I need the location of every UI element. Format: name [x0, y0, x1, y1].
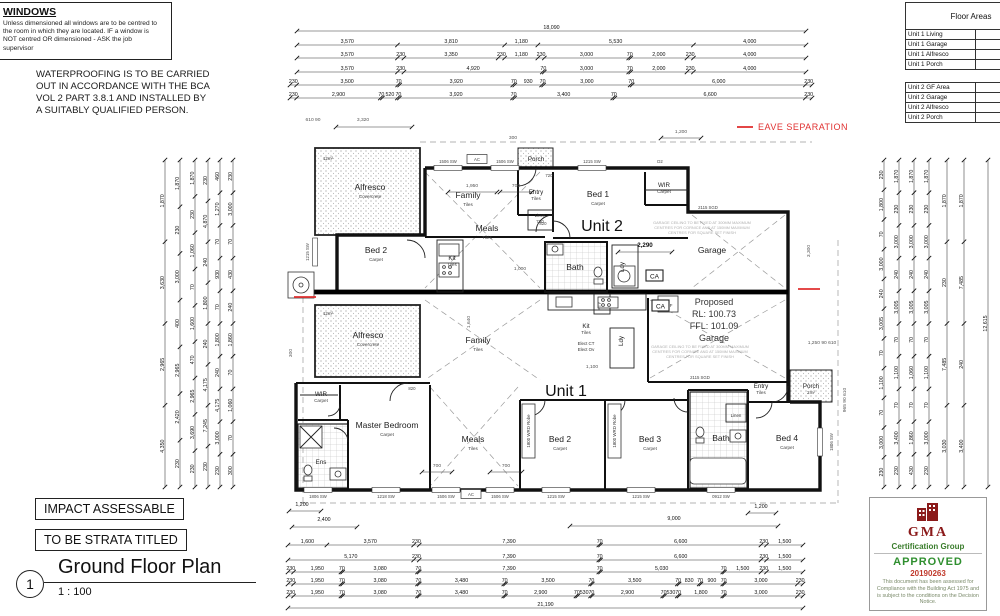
dimension-label: 3,000	[894, 235, 900, 248]
robe-label: 1800 WRD Robe	[612, 414, 617, 448]
approved-status: APPROVED	[870, 556, 986, 568]
dimension-label: 1,060	[909, 366, 915, 379]
dimension-label: 230	[175, 459, 181, 468]
floor-area-row: Unit 1 Garage	[906, 40, 1000, 50]
floor-area-label: Unit 2 Garage	[906, 93, 976, 103]
drawing-number-bubble: 1	[16, 570, 44, 598]
dimension-label: 70	[627, 52, 633, 58]
drawing-sheet: 18,0903,5703,8101,1805,5304,0003,5702303…	[0, 0, 1000, 616]
gma-building-icon	[913, 501, 943, 521]
window-label: 1506 SW	[496, 159, 515, 164]
room-label: PTY	[597, 302, 602, 311]
dimension-label: 70	[511, 79, 517, 85]
dimension-label: 230	[759, 566, 768, 572]
dimension-label: 70	[894, 337, 900, 343]
dimension-label: 240	[924, 270, 930, 279]
window-label: 1215 SW	[305, 242, 310, 261]
room-finish-label: Tiles	[447, 262, 457, 267]
dimension-label: 1,950	[311, 578, 324, 584]
dimension-label: 230	[215, 466, 221, 475]
floor-areas-title: Floor Areas	[906, 3, 1000, 30]
room-finish-label: Covercrete	[357, 342, 380, 347]
floor-area-label: Unit 2 Porch	[906, 113, 976, 123]
dimension-label: 3,000	[754, 590, 767, 596]
eave-separation-legend: EAVE SEPARATION	[758, 122, 848, 132]
room-label: Bed 4	[776, 433, 798, 443]
dimension-label: 2,000	[652, 52, 665, 58]
dimension-label: 230	[924, 466, 930, 475]
dimension-label: 70	[909, 402, 915, 408]
dimension-label: 1,200	[754, 504, 767, 510]
dimension-label: 1,500	[778, 566, 791, 572]
impact-assessable-stamp: IMPACT ASSESSABLE	[35, 498, 184, 520]
dimension-label: 3,080	[373, 590, 386, 596]
floor-areas-panel: Floor Areas Unit 1 LivingUnit 1 GarageUn…	[905, 2, 1000, 123]
room-label: Entry	[754, 383, 769, 390]
window-label: 1506 SW	[437, 494, 456, 499]
dimension-label: 830	[685, 578, 694, 584]
dimension-label: 70	[697, 578, 703, 584]
internal-dimension: 1,000	[514, 266, 527, 272]
dimension-label: 520	[385, 92, 394, 98]
dimension-label: 1,270	[215, 202, 221, 215]
dimension-label: 3,000	[580, 52, 593, 58]
room-finish-label: Carpet	[369, 257, 384, 262]
internal-dimension: 3,300	[806, 245, 812, 258]
room-label: Linen	[731, 413, 742, 418]
dimension-label: 3,000	[924, 431, 930, 444]
dimension-label: 5,170	[344, 554, 357, 560]
room-label: Bath	[712, 433, 730, 443]
room-label: WIR	[658, 182, 671, 189]
dimension-label: 3,920	[450, 79, 463, 85]
internal-dimension: 300	[288, 349, 294, 357]
dimension-label: 230	[286, 578, 295, 584]
room-label: Family	[455, 190, 481, 200]
dimension-label: 230	[289, 79, 298, 85]
dimension-label: 1,100	[879, 376, 885, 389]
dimension-label: 70	[879, 410, 885, 416]
internal-dimension: 700	[433, 463, 441, 469]
dimension-label: 12,615	[983, 315, 989, 331]
ca-label: CA	[650, 274, 660, 281]
dimension-label: 3,080	[373, 566, 386, 572]
room-label: Linen	[535, 213, 546, 218]
room-finish-label: 2m²	[807, 390, 815, 395]
dimension-label: 3,000	[924, 235, 930, 248]
room-label: Family	[465, 335, 491, 345]
dimension-label: 3,000	[215, 431, 221, 444]
floor-area-value	[976, 93, 1000, 103]
dimension-label: 230	[879, 468, 885, 477]
dimension-label: 3,690	[190, 426, 196, 439]
room-label: Ldy	[618, 335, 625, 346]
dimension-label: 1,800	[203, 296, 209, 309]
window-label: 2115 SGD	[698, 205, 718, 210]
room-label: Alfresco	[353, 330, 384, 340]
floor-area-row: Unit 2 Porch	[906, 113, 1000, 123]
dimension-label: 230	[412, 539, 421, 545]
room-label: Kit	[582, 323, 590, 330]
dimension-label: 6,000	[712, 79, 725, 85]
dimension-label: 70	[721, 590, 727, 596]
dimension-label: 18,090	[543, 25, 559, 31]
dimension-label: 1,870	[909, 170, 915, 183]
floor-area-value	[976, 103, 1000, 113]
internal-dimension: 1,250 90 610	[808, 340, 837, 346]
title-underline	[44, 582, 256, 583]
floor-area-label: Unit 2 Alfresco	[906, 103, 976, 113]
dimension-label: 230	[894, 466, 900, 475]
dimension-label: 3,000	[879, 436, 885, 449]
dimension-label: 3,480	[455, 590, 468, 596]
floor-areas-table-unit1: Floor Areas Unit 1 LivingUnit 1 GarageUn…	[905, 2, 1000, 70]
room-label: Meals	[476, 223, 499, 233]
dimension-label: 1,870	[160, 194, 166, 207]
drawing-title: Ground Floor Plan	[58, 556, 221, 579]
dimension-label: 70	[228, 239, 234, 245]
dimension-label: 3,500	[541, 578, 554, 584]
dimension-label: 230	[175, 226, 181, 235]
dimension-label: 70	[339, 578, 345, 584]
room-finish-label: Tiles	[473, 347, 483, 352]
dimension-label: 70	[339, 590, 345, 596]
certification-stamp: GMA Certification Group APPROVED 2019026…	[869, 497, 987, 611]
dimension-label: 230	[190, 210, 196, 219]
floor-area-value	[976, 60, 1000, 70]
dimension-label: 70	[597, 566, 603, 572]
room-label: Porch	[528, 156, 545, 163]
dimension-label: 3,000	[879, 257, 885, 270]
dimension-label: 230	[537, 52, 546, 58]
dimension-label: 70	[588, 578, 594, 584]
window-label: 820	[539, 221, 547, 226]
dimension-label: 70	[395, 92, 401, 98]
dimension-label: 7,390	[502, 539, 515, 545]
dimension-label: 3,400	[557, 92, 570, 98]
dimension-label: 70	[588, 590, 594, 596]
dimension-label: 3,000	[754, 578, 767, 584]
dimension-label: 70	[415, 566, 421, 572]
dimension-label: 530	[580, 590, 589, 596]
room-label: Porch	[803, 383, 820, 390]
generated-annotations: 18,0903,5703,8101,1805,5304,0003,5702303…	[160, 25, 990, 610]
room-label: Bed 3	[639, 434, 661, 444]
proposed-levels-text: Garage	[699, 333, 729, 343]
internal-dimension: 3,320	[357, 117, 370, 123]
proposed-levels-text: FFL: 101.09	[690, 321, 739, 331]
dimension-label: 3,005	[924, 300, 930, 313]
dimension-label: 230	[759, 539, 768, 545]
dimension-label: 240	[959, 360, 965, 369]
dimension-label: 230	[396, 52, 405, 58]
room-finish-label: Tiles	[581, 330, 591, 335]
room-finish-label: Tiles	[463, 202, 473, 207]
dimension-label: 70	[879, 231, 885, 237]
dimension-label: 4,000	[743, 39, 756, 45]
internal-dimension: 2,290	[637, 242, 653, 249]
dimension-label: 1,180	[515, 52, 528, 58]
dimension-label: 70	[721, 578, 727, 584]
dimension-label: 70	[190, 284, 196, 290]
dimension-label: 1,200	[295, 502, 308, 508]
dimension-label: 240	[215, 368, 221, 377]
floor-area-value	[976, 113, 1000, 123]
windows-note-box: WINDOWS Unless dimensioned all windows a…	[0, 2, 172, 60]
dimension-label: 4,920	[467, 66, 480, 72]
dimension-label: 470	[190, 355, 196, 364]
dimension-label: 3,400	[894, 431, 900, 444]
dimension-label: 1,600	[190, 317, 196, 330]
dimension-label: 230	[879, 170, 885, 179]
dimension-label: 3,810	[444, 39, 457, 45]
dimension-label: 1,950	[311, 566, 324, 572]
dimension-label: 7,390	[502, 554, 515, 560]
dimension-label: 1,870	[190, 171, 196, 184]
room-label: Kit	[448, 255, 456, 262]
internal-dimension: 700	[502, 463, 510, 469]
dimension-label: 70	[909, 337, 915, 343]
dimension-label: 240	[909, 270, 915, 279]
dimension-label: 1,100	[924, 366, 930, 379]
dimension-label: 2,420	[175, 410, 181, 423]
dimension-label: 2,900	[332, 92, 345, 98]
internal-dimension: 1,100	[586, 364, 599, 370]
internal-dimension: 300	[509, 135, 517, 141]
floor-area-row: Unit 1 Living	[906, 30, 1000, 40]
window-label: AC	[468, 492, 474, 497]
dimension-label: 3,570	[341, 39, 354, 45]
room-finish-label: Carpet	[553, 446, 568, 451]
dimension-label: 230	[796, 578, 805, 584]
floor-area-label: Unit 1 Living	[906, 30, 976, 40]
window-label: D2	[657, 159, 663, 164]
dimension-label: 70	[627, 66, 633, 72]
dimension-label: 70	[540, 66, 546, 72]
dimension-label: 240	[228, 303, 234, 312]
dimension-label: 1,600	[301, 539, 314, 545]
dimension-label: 70	[924, 337, 930, 343]
room-finish-label: Covercrete	[359, 194, 382, 199]
dimension-label: 3,005	[909, 300, 915, 313]
dimension-label: 230	[909, 205, 915, 214]
dimension-label: 3,030	[942, 439, 948, 452]
dimension-label: 4,000	[743, 66, 756, 72]
window-label: AC	[474, 157, 480, 162]
internal-dimension: 1,950	[466, 183, 479, 189]
room-label: Elect Ov	[578, 347, 595, 352]
dimension-label: 1,860	[228, 333, 234, 346]
proposed-levels-text: RL: 100.73	[692, 309, 736, 319]
windows-note-title: WINDOWS	[3, 6, 167, 18]
room-label: 12m²	[323, 311, 334, 316]
dimension-label: 430	[228, 270, 234, 279]
dimension-label: 7,485	[959, 276, 965, 289]
dimension-label: 70	[540, 79, 546, 85]
window-label: 1506 SW	[491, 494, 510, 499]
dimension-label: 3,920	[449, 92, 462, 98]
dimension-label: 7,485	[942, 358, 948, 371]
internal-dimension: 965 90 610	[842, 387, 848, 412]
internal-dimension: 700	[512, 183, 520, 189]
dimension-label: 70	[415, 590, 421, 596]
floor-area-row: Unit 1 Porch	[906, 60, 1000, 70]
window-label: 0912 SW	[712, 494, 731, 499]
dimension-label: 240	[894, 270, 900, 279]
room-label: Bed 2	[549, 434, 571, 444]
window-label: 1215 SW	[547, 494, 566, 499]
dimension-label: 70	[396, 79, 402, 85]
dimension-label: 70	[675, 590, 681, 596]
dimension-label: 3,480	[455, 578, 468, 584]
window-label: 1806 SW	[309, 494, 328, 499]
dimension-label: 70	[597, 554, 603, 560]
room-label: Bath	[566, 262, 584, 272]
room-label: Unit 2	[581, 218, 623, 235]
dimension-label: 230	[759, 554, 768, 560]
dimension-label: 3,005	[879, 317, 885, 330]
dimension-label: 5,530	[609, 39, 622, 45]
dimension-label: 230	[396, 66, 405, 72]
garage-ceiling-note: CENTRES FOR SQUARE SET FINISH	[666, 354, 734, 359]
dimension-label: 1,870	[894, 170, 900, 183]
dimension-label: 240	[879, 289, 885, 298]
dimension-label: 70	[879, 350, 885, 356]
room-finish-label: Tiles	[531, 196, 541, 201]
floor-area-label: Unit 2 GF Area	[906, 83, 976, 93]
room-label: Bed 2	[365, 245, 387, 255]
dimension-label: 1,500	[778, 539, 791, 545]
approval-note: This document has been assessed for Comp…	[870, 578, 986, 606]
room-label: WIR	[315, 391, 328, 398]
dimension-label: 1,500	[736, 566, 749, 572]
dimension-label: 4,350	[160, 439, 166, 452]
dimension-label: 1,800	[879, 198, 885, 211]
window-label: 1218 SW	[377, 494, 396, 499]
window-label: 1506 SW	[439, 159, 458, 164]
dimension-label: 7,390	[502, 566, 515, 572]
dimension-label: 230	[686, 52, 695, 58]
internal-dimension: 610 90	[306, 117, 321, 123]
dimension-label: 7,245	[203, 419, 209, 432]
dimension-label: 3,500	[628, 578, 641, 584]
dimension-label: 1,180	[515, 39, 528, 45]
strata-titled-stamp: TO BE STRATA TITLED	[35, 529, 187, 551]
dimension-label: 230	[942, 278, 948, 287]
dimension-label: 230	[796, 590, 805, 596]
garage-ceiling-note: CENTRES FOR SQUARE SET FINISH	[668, 230, 736, 235]
room-finish-label: Tiles	[468, 446, 478, 451]
dimension-label: 2,900	[621, 590, 634, 596]
window-label: 2115 SGD	[690, 375, 710, 380]
dimension-label: 1,800	[215, 333, 221, 346]
floor-area-value	[976, 50, 1000, 60]
dimension-label: 70	[611, 92, 617, 98]
dimension-label: 1,100	[894, 366, 900, 379]
dimension-label: 70	[675, 578, 681, 584]
dimension-label: 70	[339, 566, 345, 572]
dimension-label: 2,000	[652, 66, 665, 72]
dimension-label: 230	[228, 172, 234, 181]
dimension-label: 70	[502, 578, 508, 584]
certification-group-label: Certification Group	[874, 542, 982, 554]
room-finish-label: Carpet	[780, 445, 795, 450]
dimension-label: 230	[286, 566, 295, 572]
dimension-label: 1,500	[778, 554, 791, 560]
dimension-label: 70	[721, 566, 727, 572]
dimension-label: 70	[215, 304, 221, 310]
floor-area-label: Unit 1 Garage	[906, 40, 976, 50]
floor-area-value	[976, 40, 1000, 50]
window-label: 820	[408, 386, 416, 391]
window-label: 1215 SW	[583, 159, 602, 164]
dimension-label: 3,630	[160, 276, 166, 289]
room-label: Garage	[698, 245, 727, 255]
proposed-levels-text: Proposed	[695, 297, 734, 307]
dimension-label: 1,060	[228, 399, 234, 412]
waterproofing-note: WATERPROOFING IS TO BE CARRIED OUT IN AC…	[36, 69, 258, 117]
dimension-label: 3,570	[341, 66, 354, 72]
dimension-label: 1,870	[959, 194, 965, 207]
room-label: Elect CT	[578, 341, 595, 346]
dimension-label: 3,000	[228, 202, 234, 215]
dimension-label: 70	[415, 578, 421, 584]
dimension-label: 5,030	[655, 566, 668, 572]
ca-label: CA	[656, 304, 666, 311]
dimension-label: 6,600	[703, 92, 716, 98]
dimension-label: 1,060	[190, 244, 196, 257]
dimension-label: 6,600	[674, 539, 687, 545]
dimension-label: 4,000	[743, 52, 756, 58]
dimension-label: 1,870	[924, 170, 930, 183]
floor-area-value	[976, 83, 1000, 93]
internal-dimension: 1,640	[466, 316, 472, 329]
dimension-label: 230	[894, 205, 900, 214]
dimension-label: 530	[666, 590, 675, 596]
dimension-label: 1,950	[311, 590, 324, 596]
gma-logo-text: GMA	[870, 525, 986, 541]
room-label: Unit 1	[545, 383, 587, 400]
room-finish-label: Carpet	[380, 432, 395, 437]
dimension-label: 230	[686, 66, 695, 72]
floor-area-row: Unit 2 Alfresco	[906, 103, 1000, 113]
window-label: 720	[545, 173, 553, 178]
internal-dimension: 1,200	[675, 129, 688, 135]
dimension-label: 2,400	[317, 517, 330, 523]
dimension-label: 230	[203, 462, 209, 471]
floor-area-label: Unit 1 Alfresco	[906, 50, 976, 60]
dimension-label: 1,800	[694, 590, 707, 596]
dimension-label: 230	[412, 554, 421, 560]
dimension-label: 430	[909, 466, 915, 475]
floor-area-row: Unit 2 Garage	[906, 93, 1000, 103]
dimension-label: 930	[524, 79, 533, 85]
dimension-label: 3,000	[580, 66, 593, 72]
dimension-label: 3,400	[959, 439, 965, 452]
dimension-label: 230	[497, 52, 506, 58]
dimension-label: 4,175	[215, 399, 221, 412]
drawing-scale: 1 : 100	[58, 586, 92, 598]
dimension-label: 2,965	[190, 389, 196, 402]
dimension-label: 70	[894, 402, 900, 408]
dimension-label: 70	[511, 92, 517, 98]
window-label: 1215 SW	[632, 494, 651, 499]
dimension-label: 230	[289, 92, 298, 98]
dimension-label: 240	[203, 339, 209, 348]
dimension-label: 6,600	[674, 554, 687, 560]
dimension-label: 3,080	[373, 578, 386, 584]
dimension-label: 3,000	[580, 79, 593, 85]
